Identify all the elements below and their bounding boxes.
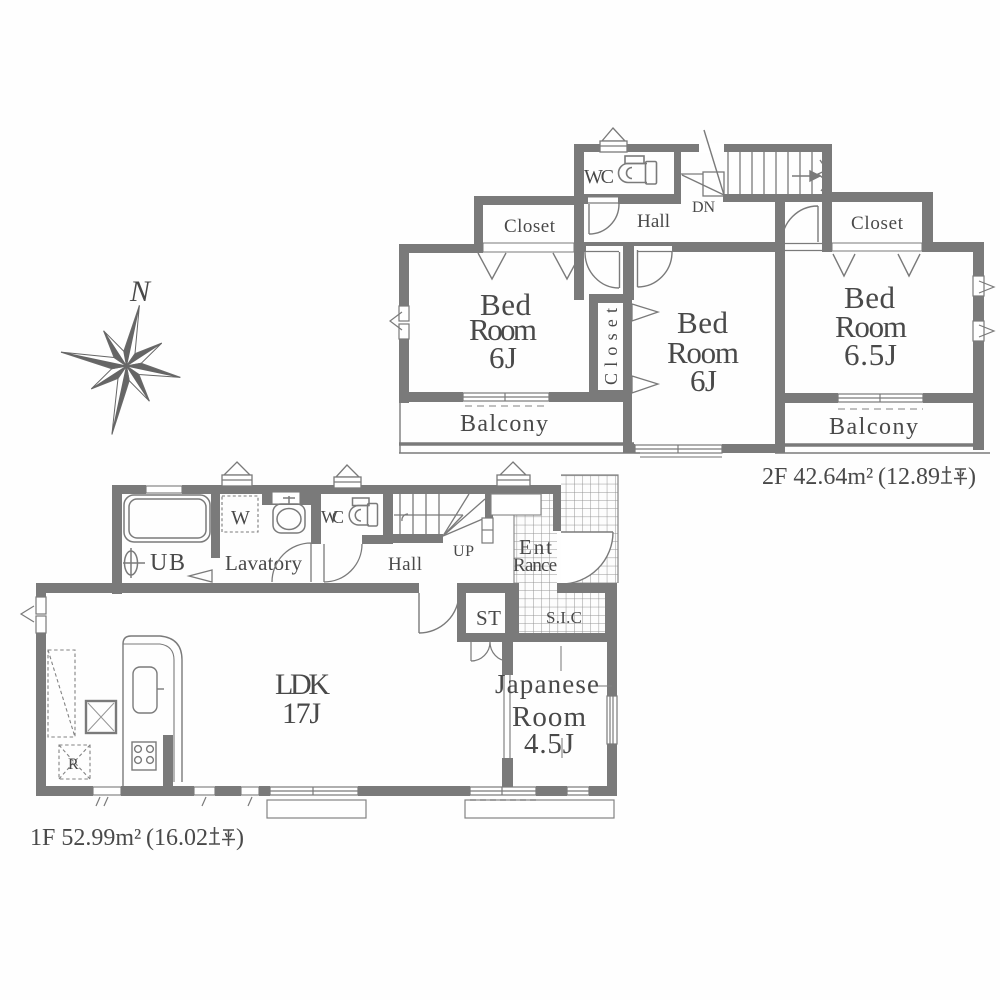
svg-text:UP: UP (453, 543, 474, 560)
svg-text:1F 52.99m² (16.02: 1F 52.99m² (16.02 (30, 825, 208, 851)
svg-text:Japanese: Japanese (495, 669, 599, 699)
svg-text:4.5J: 4.5J (524, 728, 574, 760)
svg-text:R: R (68, 756, 79, 773)
svg-text:Hall: Hall (637, 211, 670, 232)
svg-text:17J: 17J (282, 697, 321, 730)
svg-text:): ) (968, 464, 976, 490)
svg-text:Closet: Closet (504, 216, 556, 237)
svg-text:Rance: Rance (513, 555, 557, 576)
svg-text:6J: 6J (690, 363, 717, 398)
svg-text:): ) (236, 825, 244, 851)
svg-text:ST: ST (476, 606, 501, 630)
svg-text:6J: 6J (489, 340, 517, 375)
svg-text:Closet: Closet (851, 213, 904, 234)
svg-text:6.5J: 6.5J (844, 337, 897, 372)
svg-text:WC: WC (584, 166, 614, 188)
svg-text:Hall: Hall (388, 554, 422, 575)
svg-text:N: N (129, 275, 152, 308)
svg-text:DN: DN (692, 199, 715, 216)
svg-text:S.I.C: S.I.C (546, 608, 582, 627)
svg-text:2F 42.64m² (12.89: 2F 42.64m² (12.89 (762, 464, 940, 490)
svg-text:W: W (231, 507, 250, 529)
svg-text:WC: WC (321, 507, 344, 527)
svg-text:Lavatory: Lavatory (225, 551, 303, 575)
